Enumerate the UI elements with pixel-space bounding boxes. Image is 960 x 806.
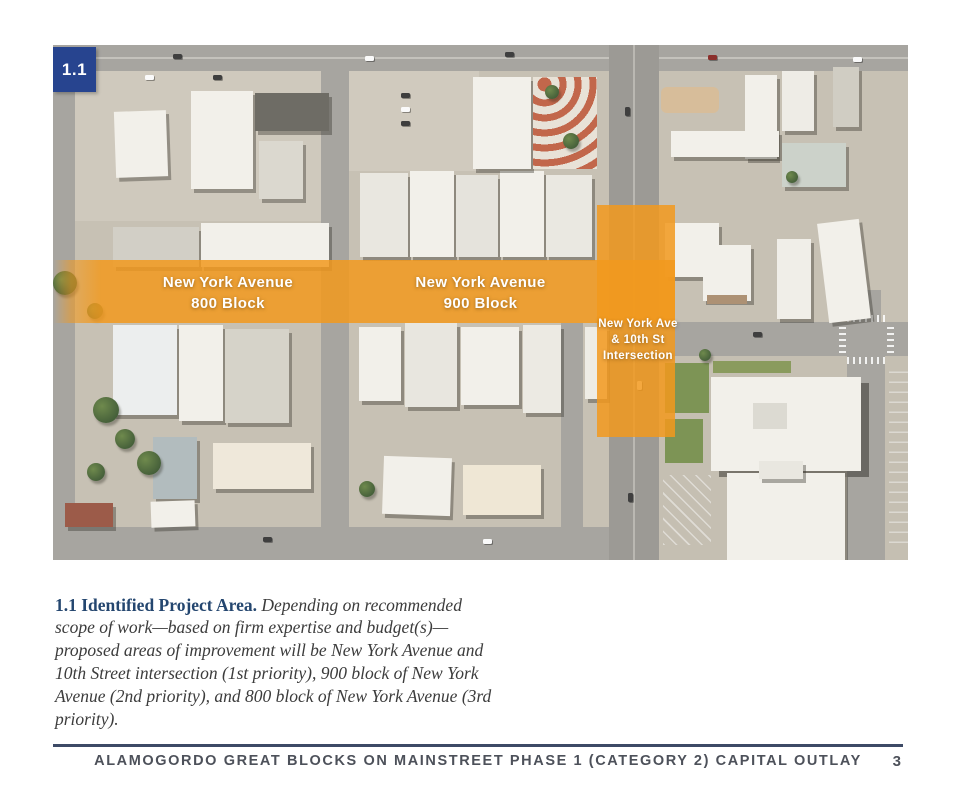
striped-plaza [533,77,597,169]
zone-label-intersection: New York Ave & 10th St Intersection [598,317,678,365]
car [401,93,410,98]
car [401,107,410,112]
car [853,57,862,62]
car [483,539,492,544]
car [263,537,272,542]
building [473,77,531,169]
zone-label-line: New York Ave [598,317,678,333]
tree [87,463,105,481]
tree [359,481,375,497]
car [401,121,410,126]
car [365,56,374,61]
tree [699,349,711,361]
car [173,54,182,59]
building [410,171,454,257]
building [817,219,871,323]
parking-stripes [889,363,908,543]
building [114,110,168,178]
building [456,175,498,257]
building [359,327,401,401]
crosswalk-stripes [839,325,846,353]
zone-label-800-block: New York Avenue 800 Block [108,273,348,314]
figure-caption: 1.1 Identified Project Area. Depending o… [55,594,501,732]
building [546,175,592,257]
building [703,245,751,301]
zone-label-900-block: New York Avenue 900 Block [368,273,593,314]
building [777,239,811,319]
building [782,71,814,131]
parking-stripes [663,475,711,545]
building [759,461,803,479]
building [65,503,113,527]
footer-divider [53,744,903,747]
car [213,75,222,80]
tree [786,171,798,183]
building [225,329,289,423]
building [833,67,859,127]
tree [115,429,135,449]
tree [563,133,579,149]
tree [137,451,161,475]
building [405,323,457,407]
building [500,171,544,257]
zone-label-line: 800 Block [108,294,348,315]
car [505,52,514,57]
building [179,325,223,421]
building [255,93,329,131]
car [145,75,154,80]
building [213,443,311,489]
car [628,493,633,502]
car [625,107,630,116]
zone-label-line: New York Avenue [368,273,593,294]
road-bottom [53,527,609,560]
page-number: 3 [893,753,901,770]
zone-label-line: New York Avenue [108,273,348,294]
building [382,456,452,516]
figure-number-badge: 1.1 [53,47,96,92]
awning [707,295,747,304]
page-footer: ALAMOGORDO GREAT BLOCKS ON MAINSTREET PH… [53,753,903,769]
building [360,173,408,257]
building [113,325,177,415]
building [259,141,303,199]
footer-title: ALAMOGORDO GREAT BLOCKS ON MAINSTREET PH… [53,753,903,769]
building [463,465,541,515]
zone-label-line: 900 Block [368,294,593,315]
building [671,131,779,157]
building [523,325,561,413]
car [708,55,717,60]
aerial-map-figure: New York Avenue 800 Block New York Avenu… [53,45,908,560]
tree [93,397,119,423]
building-courtyard [753,403,787,429]
dirt-patch [661,87,719,113]
building [727,473,845,560]
caption-lead: 1.1 Identified Project Area. [55,595,257,615]
lawn [713,361,791,373]
tree [545,85,559,99]
crosswalk-stripes [887,325,894,353]
parking-lot [349,71,479,171]
building [151,500,196,528]
zone-label-line: Intersection [598,349,678,365]
building [461,327,519,405]
crosswalk-stripes [847,357,885,364]
car [753,332,762,337]
road-cross-street [561,323,583,527]
building [191,91,253,189]
zone-label-line: & 10th St [598,333,678,349]
